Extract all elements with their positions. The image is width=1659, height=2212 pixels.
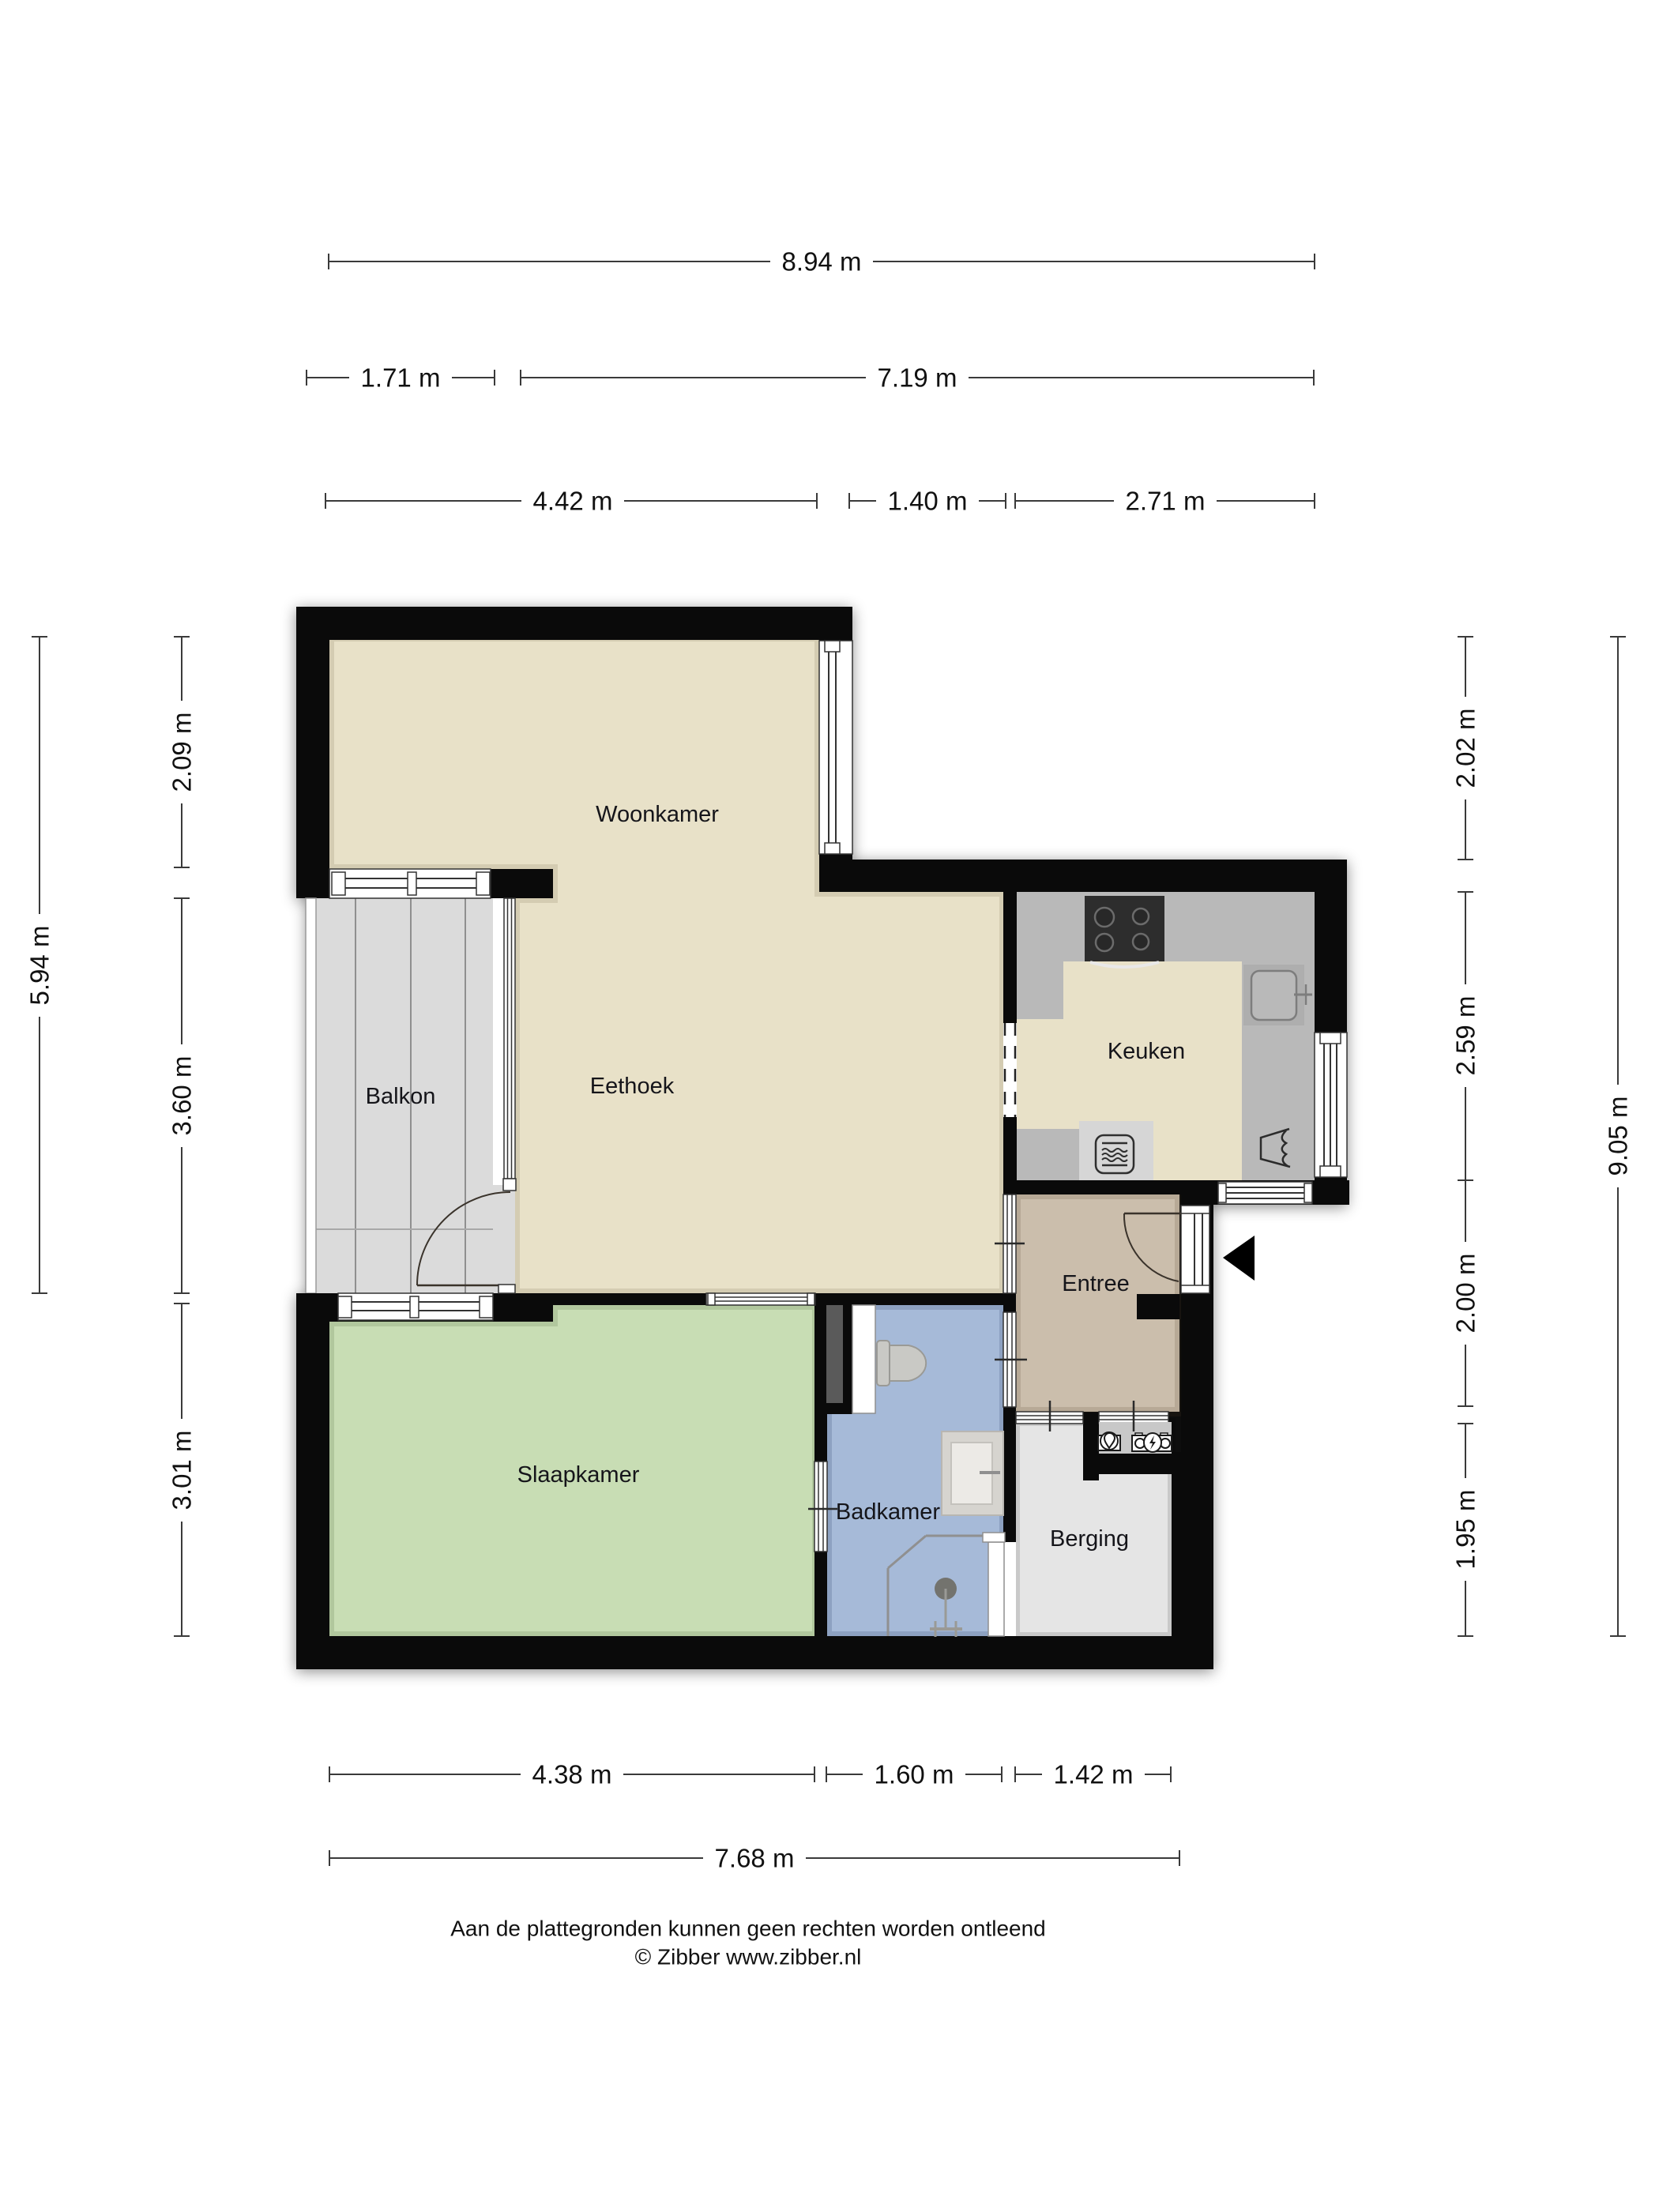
svg-text:7.19 m: 7.19 m xyxy=(878,363,957,393)
svg-text:Keuken: Keuken xyxy=(1108,1039,1185,1064)
svg-text:Entree: Entree xyxy=(1062,1271,1129,1296)
svg-text:5.94 m: 5.94 m xyxy=(25,926,55,1006)
svg-text:7.68 m: 7.68 m xyxy=(715,1844,795,1873)
svg-text:3.60 m: 3.60 m xyxy=(167,1056,197,1136)
svg-text:2.09 m: 2.09 m xyxy=(167,713,197,792)
svg-text:1.60 m: 1.60 m xyxy=(875,1760,954,1789)
svg-text:Balkon: Balkon xyxy=(366,1084,436,1109)
svg-text:© Zibber www.zibber.nl: © Zibber www.zibber.nl xyxy=(635,1945,862,1969)
svg-text:1.95 m: 1.95 m xyxy=(1451,1490,1480,1570)
svg-text:2.02 m: 2.02 m xyxy=(1451,709,1480,788)
svg-text:2.71 m: 2.71 m xyxy=(1126,487,1206,516)
svg-text:Slaapkamer: Slaapkamer xyxy=(517,1462,640,1488)
svg-text:9.05 m: 9.05 m xyxy=(1604,1097,1633,1176)
svg-text:Woonkamer: Woonkamer xyxy=(596,802,719,827)
svg-text:2.59 m: 2.59 m xyxy=(1451,996,1480,1076)
svg-text:Aan de plattegronden kunnen ge: Aan de plattegronden kunnen geen rechten… xyxy=(450,1917,1045,1941)
svg-text:4.42 m: 4.42 m xyxy=(533,487,613,516)
svg-text:2.00 m: 2.00 m xyxy=(1451,1254,1480,1334)
svg-text:Eethoek: Eethoek xyxy=(590,1074,675,1099)
svg-text:1.40 m: 1.40 m xyxy=(888,487,968,516)
svg-text:3.01 m: 3.01 m xyxy=(167,1431,197,1510)
svg-text:1.71 m: 1.71 m xyxy=(361,363,441,393)
svg-text:Badkamer: Badkamer xyxy=(836,1499,941,1525)
svg-text:8.94 m: 8.94 m xyxy=(782,247,862,276)
svg-text:Berging: Berging xyxy=(1050,1526,1129,1552)
svg-text:1.42 m: 1.42 m xyxy=(1054,1760,1134,1789)
svg-text:4.38 m: 4.38 m xyxy=(532,1760,612,1789)
